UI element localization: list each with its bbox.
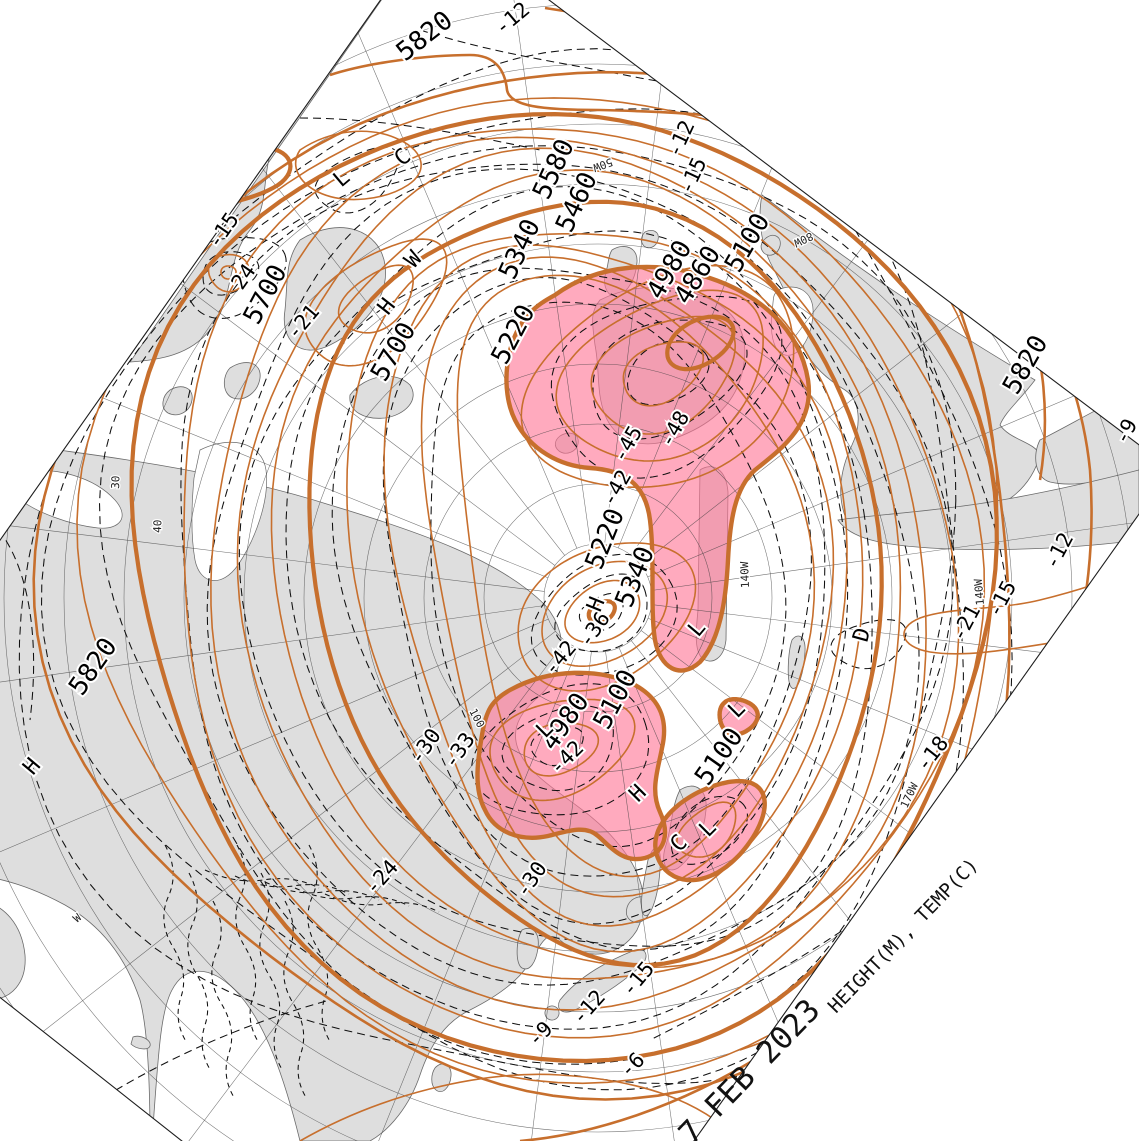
upper-air-analysis-map: 5820582058205700570055805460534052205100…	[0, 0, 1139, 1141]
height-contour-label: 5700	[365, 317, 422, 386]
temperature-contour-label: -18	[911, 731, 953, 776]
landmass	[517, 928, 538, 968]
pressure-marker: H	[582, 594, 610, 616]
temperature-contour-label: -12	[662, 117, 700, 162]
graticule-label: 40	[151, 519, 164, 533]
weather-map-page: 5820582058205700570055805460534052205100…	[0, 0, 1139, 1141]
units-label: HEIGHT(M), TEMP(C)	[824, 854, 983, 1017]
temperature-contour-label: -9	[523, 1017, 558, 1052]
pressure-marker: D	[849, 625, 877, 644]
landmass	[0, 900, 25, 1000]
landmass	[163, 387, 192, 415]
temperature-contour-label: -36	[573, 607, 614, 652]
graticule-label: 30	[109, 475, 122, 489]
graticule-label: 140W	[972, 578, 987, 606]
graticule-label: 140W	[738, 561, 752, 588]
landmass	[641, 230, 658, 247]
height-contour-label: 5220	[580, 504, 631, 573]
temperature-contour-label: -12	[490, 0, 534, 40]
pressure-marker: L	[329, 165, 355, 193]
